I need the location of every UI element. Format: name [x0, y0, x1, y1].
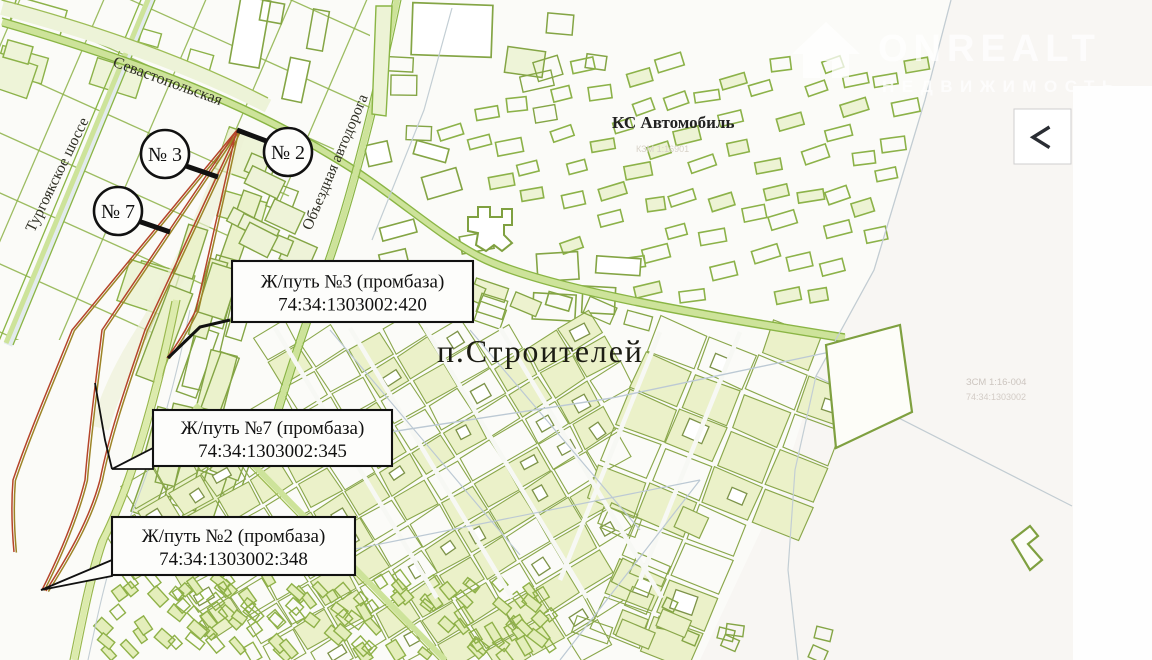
- svg-text:Ж/путь №3 (промбаза): Ж/путь №3 (промбаза): [261, 272, 445, 293]
- svg-text:74:34:1303002:348: 74:34:1303002:348: [159, 549, 308, 570]
- svg-text:Ж/путь №7 (промбаза): Ж/путь №7 (промбаза): [181, 418, 365, 439]
- svg-text:ONREALT: ONREALT: [878, 28, 1101, 70]
- svg-text:ЗСМ 1:16-004: ЗСМ 1:16-004: [966, 377, 1026, 388]
- svg-text:74:34:1303002:420: 74:34:1303002:420: [278, 295, 427, 316]
- svg-text:№ 2: № 2: [271, 142, 305, 164]
- svg-text:74:34:1303002: 74:34:1303002: [966, 392, 1026, 402]
- svg-text:Ж/путь №2 (промбаза): Ж/путь №2 (промбаза): [142, 526, 326, 547]
- svg-text:п.Строителей: п.Строителей: [437, 333, 644, 369]
- svg-text:№ 7: № 7: [101, 201, 135, 223]
- svg-text:№ 3: № 3: [148, 144, 182, 166]
- svg-text:74:34:1303002:345: 74:34:1303002:345: [198, 441, 347, 462]
- svg-text:КЗМ 1:16901: КЗМ 1:16901: [636, 144, 689, 154]
- svg-text:КС Автомобиль: КС Автомобиль: [612, 113, 734, 132]
